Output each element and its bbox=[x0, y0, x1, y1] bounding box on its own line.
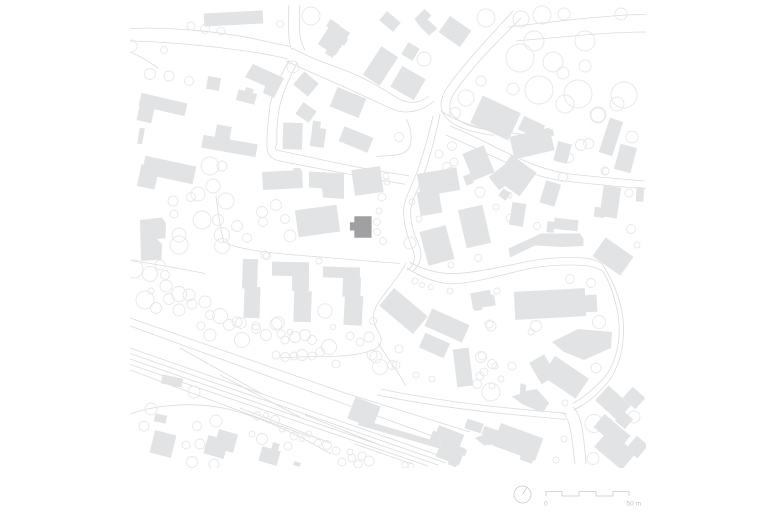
svg-text:0: 0 bbox=[544, 501, 548, 508]
svg-text:50 m: 50 m bbox=[627, 501, 641, 508]
